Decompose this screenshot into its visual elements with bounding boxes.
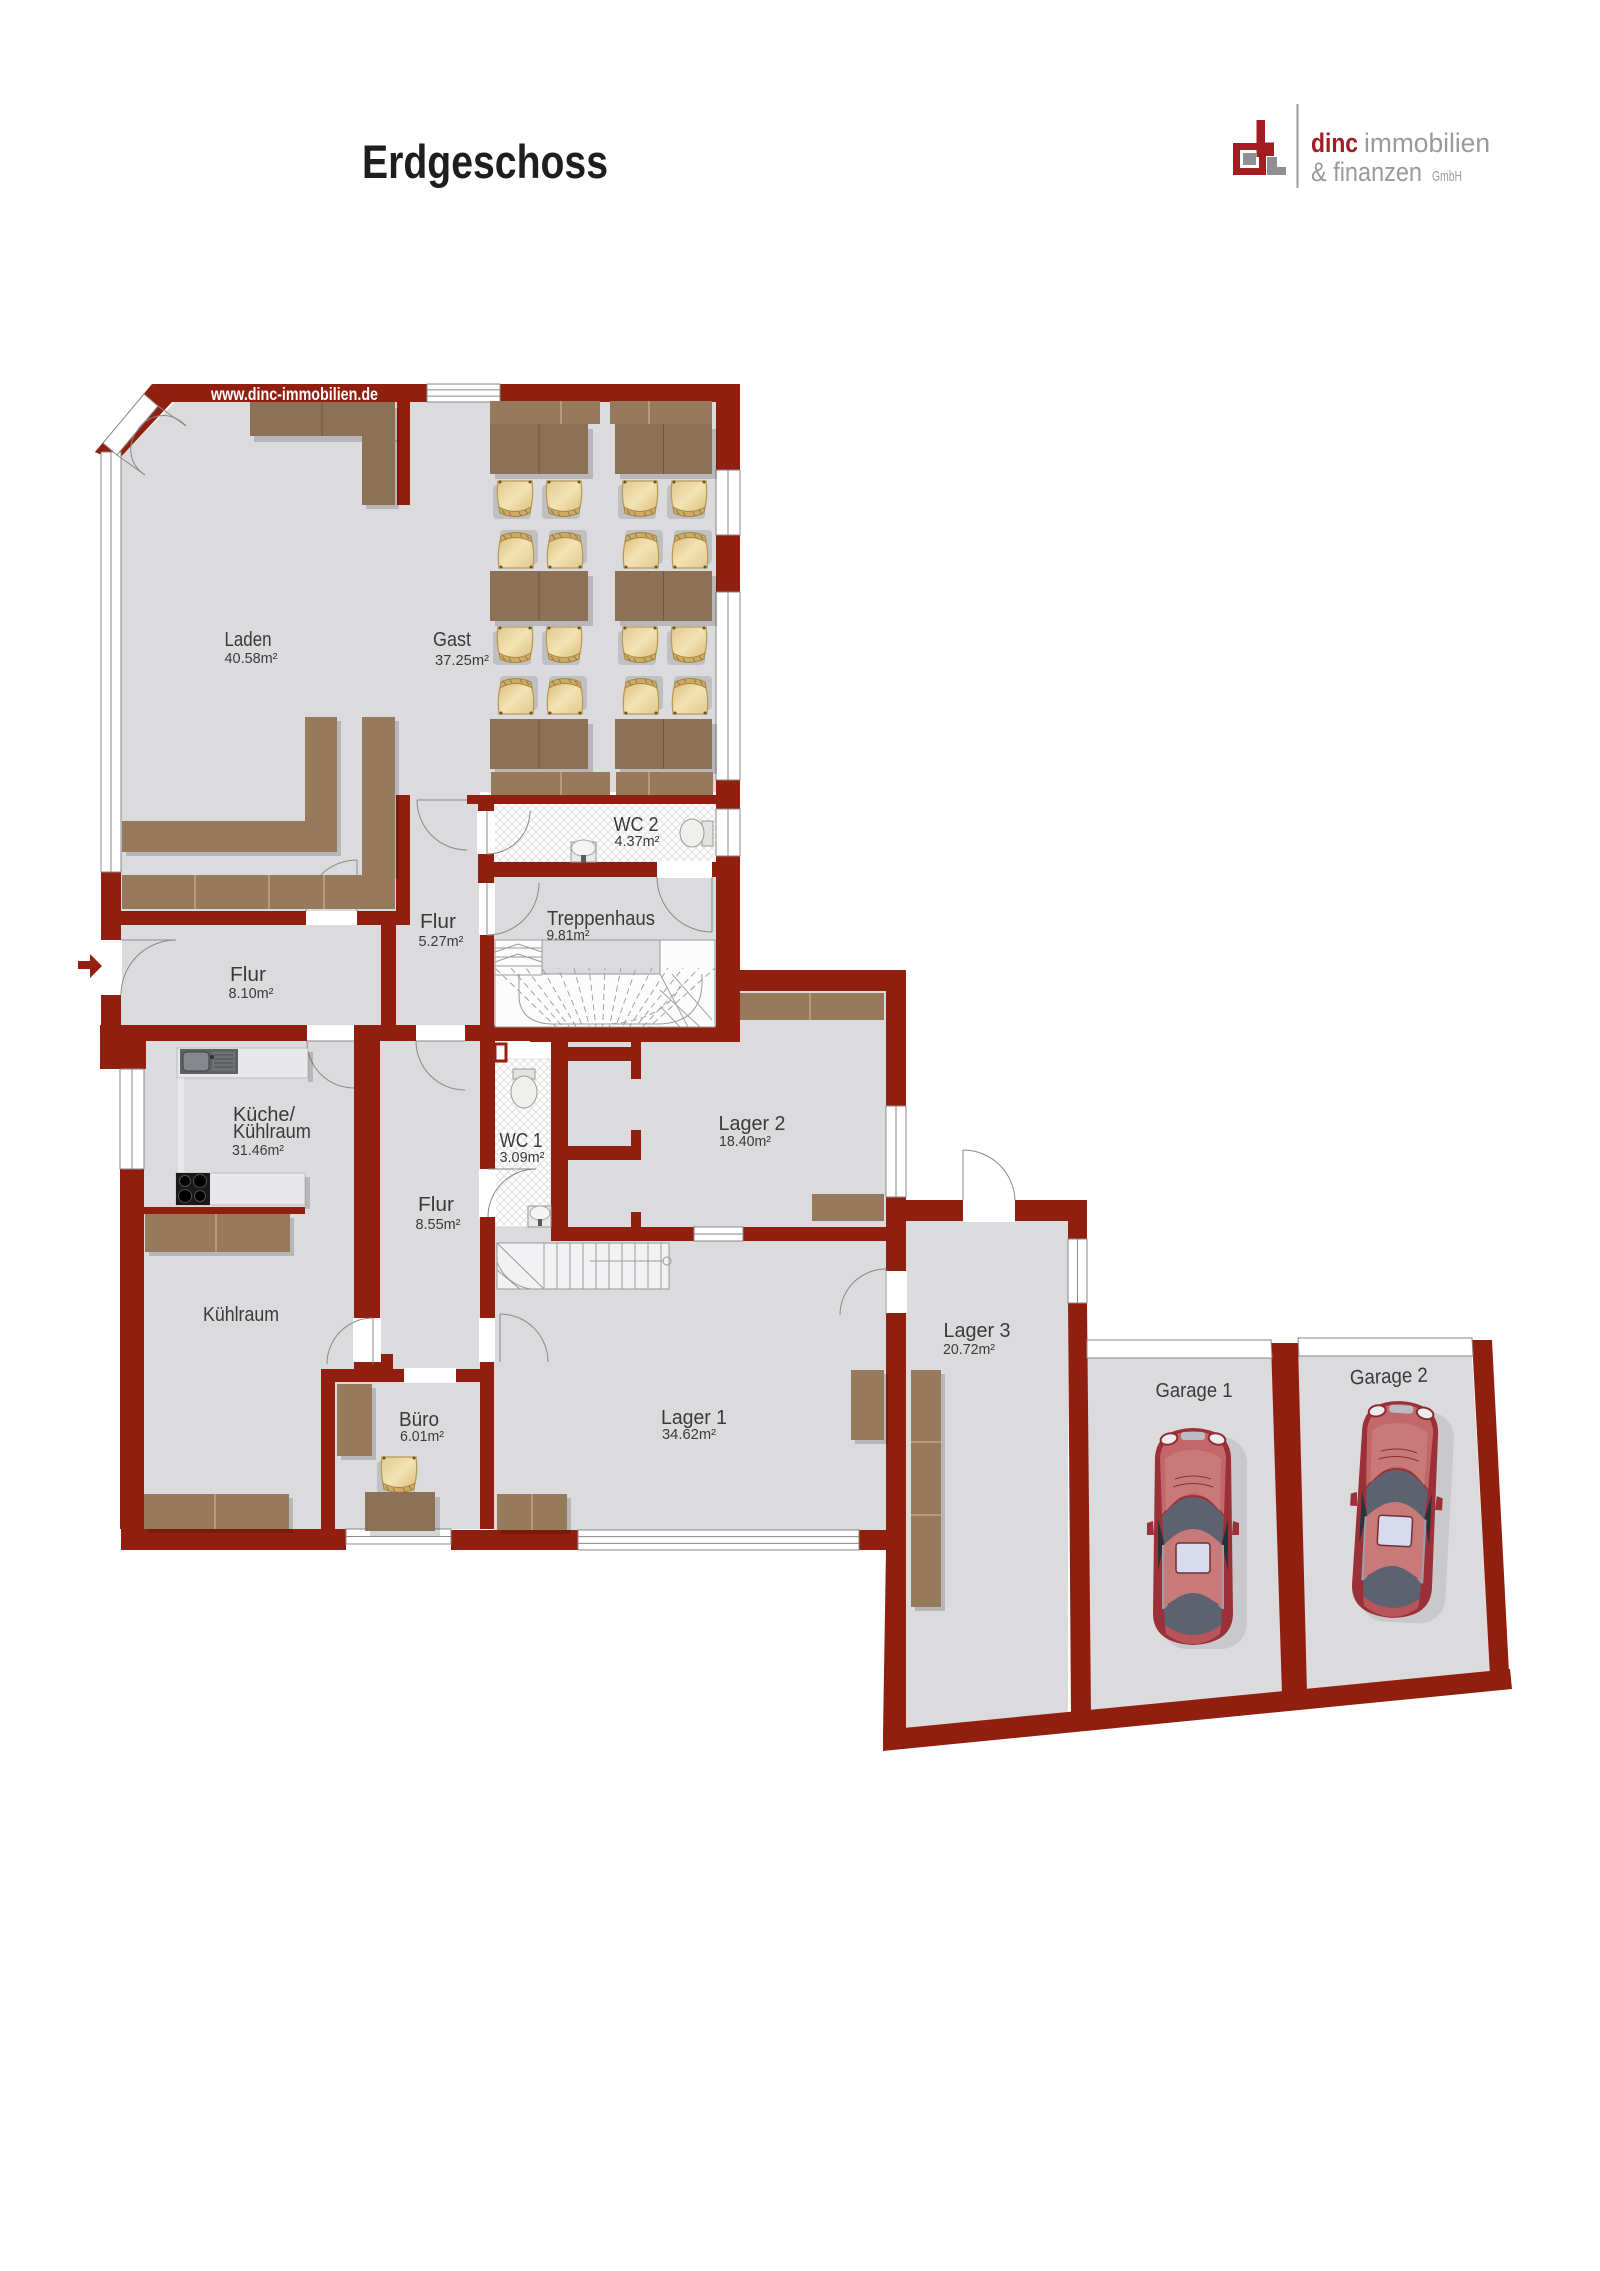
svg-text:37.25m²: 37.25m²	[435, 653, 489, 669]
svg-text:Büro: Büro	[399, 1408, 439, 1431]
svg-text:WC 2: WC 2	[614, 813, 659, 836]
svg-text:Kühlraum: Kühlraum	[233, 1120, 311, 1143]
svg-text:Treppenhaus: Treppenhaus	[547, 907, 655, 930]
svg-text:Gast: Gast	[433, 628, 471, 651]
svg-text:Flur: Flur	[230, 963, 266, 986]
svg-text:40.58m²: 40.58m²	[225, 651, 278, 667]
svg-text:Erdgeschoss: Erdgeschoss	[362, 135, 608, 188]
svg-text:4.37m²: 4.37m²	[615, 834, 660, 850]
svg-text:WC 1: WC 1	[500, 1129, 543, 1152]
svg-text:5.27m²: 5.27m²	[419, 934, 464, 950]
svg-text:dinc: dinc	[1311, 128, 1358, 158]
svg-text:Lager 2: Lager 2	[719, 1112, 786, 1135]
svg-text:Garage 2: Garage 2	[1350, 1364, 1429, 1390]
svg-text:8.55m²: 8.55m²	[416, 1217, 461, 1233]
svg-text:3.09m²: 3.09m²	[500, 1150, 545, 1166]
svg-text:34.62m²: 34.62m²	[662, 1427, 716, 1443]
svg-text:www.dinc-immobilien.de: www.dinc-immobilien.de	[210, 384, 378, 404]
svg-text:Kühlraum: Kühlraum	[203, 1303, 279, 1326]
svg-text:immobilien: immobilien	[1364, 128, 1490, 158]
svg-text:Lager 1: Lager 1	[661, 1406, 727, 1429]
svg-text:9.81m²: 9.81m²	[547, 928, 590, 944]
svg-text:& finanzen: & finanzen	[1311, 157, 1422, 187]
svg-text:8.10m²: 8.10m²	[229, 986, 274, 1002]
svg-text:Garage 1: Garage 1	[1156, 1379, 1233, 1402]
svg-text:Flur: Flur	[418, 1193, 454, 1216]
svg-text:18.40m²: 18.40m²	[719, 1134, 771, 1150]
svg-text:6.01m²: 6.01m²	[400, 1429, 444, 1445]
svg-text:20.72m²: 20.72m²	[943, 1342, 995, 1358]
svg-text:GmbH: GmbH	[1432, 168, 1462, 185]
svg-text:Lager 3: Lager 3	[944, 1319, 1011, 1342]
svg-text:31.46m²: 31.46m²	[232, 1143, 284, 1159]
svg-text:Laden: Laden	[225, 628, 272, 651]
svg-text:Flur: Flur	[420, 910, 456, 933]
